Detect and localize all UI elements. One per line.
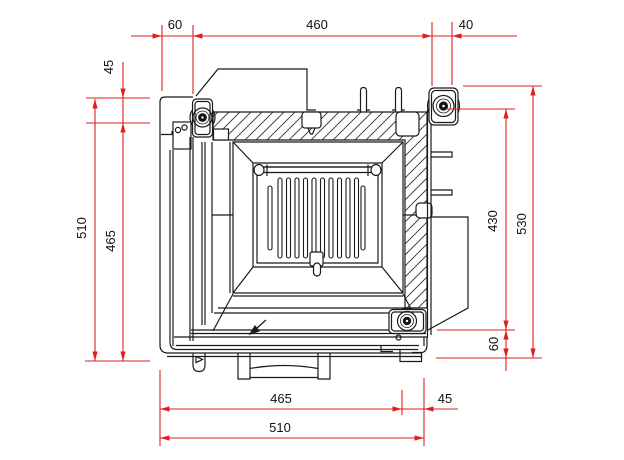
dim-label-left-510: 510 [74,217,89,239]
drawing-svg: 60 460 40 45 510 465 430 530 60 465 45 5… [0,0,624,460]
dim-label-right-60: 60 [486,337,501,351]
dim-label-bottom-465: 465 [270,391,292,406]
right-casing-edge [428,110,432,337]
dim-label-top-60: 60 [168,17,182,32]
dim-label-bottom-510: 510 [269,420,291,435]
pivot-bolt-top-right [428,88,460,125]
technical-drawing-canvas: 60 460 40 45 510 465 430 530 60 465 45 5… [0,0,624,460]
dim-label-top-40: 40 [459,17,473,32]
dim-label-right-430: 430 [485,210,500,232]
bottom-tab [193,353,205,372]
dimension-lines [85,22,542,446]
stove-section-drawing [160,69,468,379]
wall-left-step [214,129,229,140]
dim-line-bottom [160,370,458,446]
tl-screw-1 [175,127,180,132]
top-deflector-flap [196,69,316,110]
dim-label-left-45: 45 [101,60,116,74]
dim-label-right-530: 530 [514,213,529,235]
pivot-bolt-bottom-right [389,309,426,334]
dim-label-left-465: 465 [103,230,118,252]
grate-bar [264,165,371,177]
dim-line-top [131,22,517,94]
wall-clip-notch [302,112,321,128]
wall-side-notch [416,203,432,218]
back-wall-pin-left [357,88,370,113]
right-tabs [431,152,452,195]
grate-slots [268,178,365,258]
dim-label-top-460: 460 [306,17,328,32]
grate-knob-stem [314,263,321,276]
glass-corner-marker [256,320,266,329]
tl-screw-2 [182,125,187,130]
dim-label-bottom-45: 45 [438,391,452,406]
bottom-right-hook [381,346,422,362]
grate-bar-end-right [371,165,381,176]
grate-bar-end-left [254,165,264,176]
pivot-bolt-top-left [190,99,215,137]
back-wall-pin-right [392,88,405,113]
bottom-tab-triangle [196,357,203,363]
dimension-labels: 60 460 40 45 510 465 430 530 60 465 45 5… [74,17,529,435]
dimension-arrowheads [92,33,535,440]
wall-corner-notch [396,112,419,136]
right-convection-box [428,217,468,330]
